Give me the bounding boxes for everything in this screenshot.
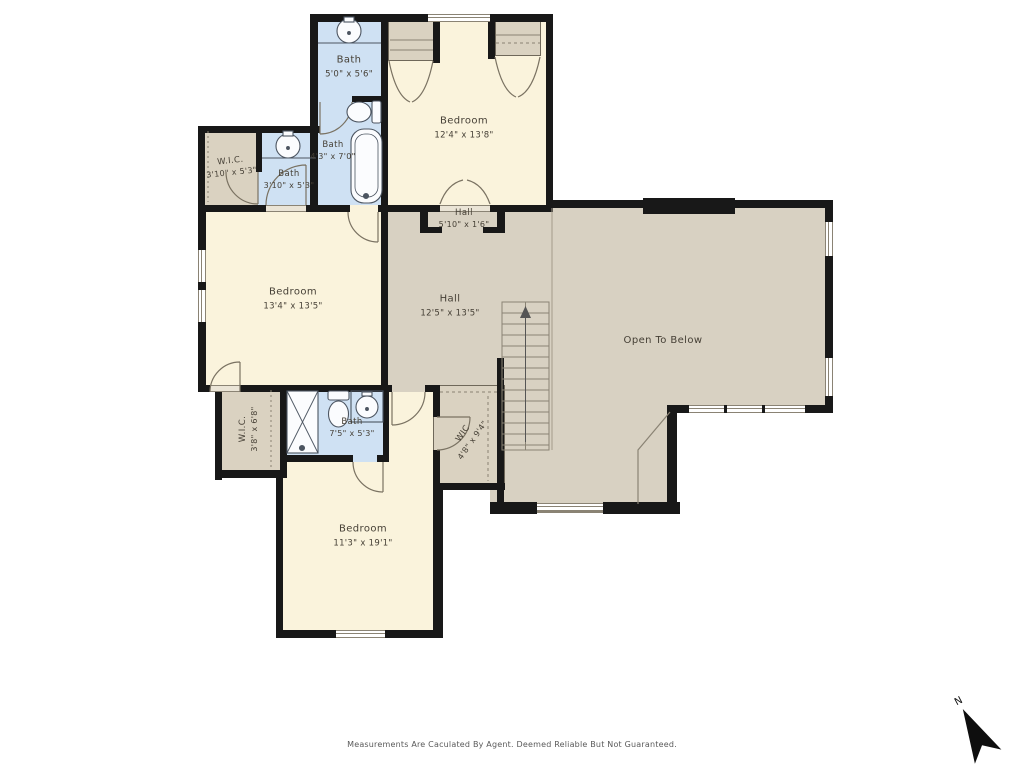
wall-segment xyxy=(667,405,677,512)
room-label-open-to-below: Open To Below xyxy=(624,334,703,349)
room-bath-top-block xyxy=(310,14,388,212)
compass: N xyxy=(943,690,1001,764)
window xyxy=(537,503,603,513)
wall-segment xyxy=(420,212,428,233)
room-label-bedroom-lower: Bedroom 11'3" x 19'1" xyxy=(333,523,392,550)
wall-segment xyxy=(383,385,389,462)
room-label-bedroom-top: Bedroom 12'4" x 13'8" xyxy=(434,115,493,142)
room-label-bedroom-left: Bedroom 13'4" x 13'5" xyxy=(263,286,322,313)
wall-segment xyxy=(381,14,388,212)
room-landing xyxy=(490,385,677,510)
room-label-bath-lower: Bath 7'5" x 5'3" xyxy=(329,416,374,440)
wall-segment xyxy=(488,17,495,59)
wall-segment xyxy=(283,455,353,462)
door-threshold xyxy=(266,205,306,212)
wall-segment xyxy=(198,385,210,392)
wall-segment xyxy=(546,14,553,205)
room-label-bath-top: Bath 5'0" x 5'6" xyxy=(325,54,373,81)
wall-segment xyxy=(198,205,266,212)
wall-segment xyxy=(643,198,735,214)
wall-segment xyxy=(310,14,430,22)
wall-segment xyxy=(198,322,206,386)
wall-segment xyxy=(198,282,206,290)
wall-segment xyxy=(490,14,553,22)
window xyxy=(825,222,833,256)
wall-segment xyxy=(256,126,262,172)
wall-segment xyxy=(603,502,680,514)
wall-segment xyxy=(306,205,318,212)
wall-segment xyxy=(198,126,205,212)
closet-bedroom-top-right xyxy=(495,21,541,56)
window xyxy=(336,630,385,638)
closet-bedroom-top-left xyxy=(388,21,435,61)
wall-segment xyxy=(825,208,833,222)
window xyxy=(825,358,833,396)
wall-segment xyxy=(433,17,440,63)
wall-segment xyxy=(805,405,833,413)
wall-segment xyxy=(276,630,336,638)
room-label-bath-left: Bath 3'10" x 5'3" xyxy=(264,168,315,192)
wall-segment xyxy=(433,490,443,638)
wall-segment xyxy=(378,205,440,212)
window-mullion xyxy=(724,405,727,413)
north-label: N xyxy=(953,695,965,708)
window xyxy=(198,290,206,322)
wall-segment xyxy=(198,212,206,250)
wall-segment xyxy=(276,473,283,638)
wall-segment xyxy=(490,205,553,212)
floor-plan: N Bath 5'0" x 5'6" Bath 4'3" x 7'0" Bedr… xyxy=(0,0,1024,768)
north-arrow-icon xyxy=(950,702,1002,764)
wall-segment xyxy=(381,212,388,387)
wall-segment xyxy=(280,385,287,477)
room-label-hall-main: Hall 12'5" x 13'5" xyxy=(420,293,479,320)
door-threshold xyxy=(210,385,240,392)
room-label-bath-mid: Bath 4'3" x 7'0" xyxy=(310,139,355,163)
wall-segment xyxy=(433,483,505,490)
window xyxy=(428,14,490,22)
disclaimer-text: Measurements Are Caculated By Agent. Dee… xyxy=(0,740,1024,749)
wall-segment xyxy=(497,212,505,233)
wall-segment xyxy=(215,385,222,480)
wall-segment xyxy=(352,96,388,102)
wall-segment xyxy=(240,385,392,392)
room-label-wic-lower-left: W.I.C. 3'8" x 6'8" xyxy=(237,406,261,451)
wall-segment xyxy=(825,256,833,358)
window-mullion xyxy=(762,405,765,413)
window xyxy=(198,250,206,282)
wall-segment xyxy=(377,455,389,462)
wall-segment xyxy=(433,385,440,417)
room-label-hall-upper: Hall 5'10" x 1'6" xyxy=(439,207,490,231)
room-open-to-below xyxy=(546,200,833,412)
window xyxy=(689,405,805,413)
